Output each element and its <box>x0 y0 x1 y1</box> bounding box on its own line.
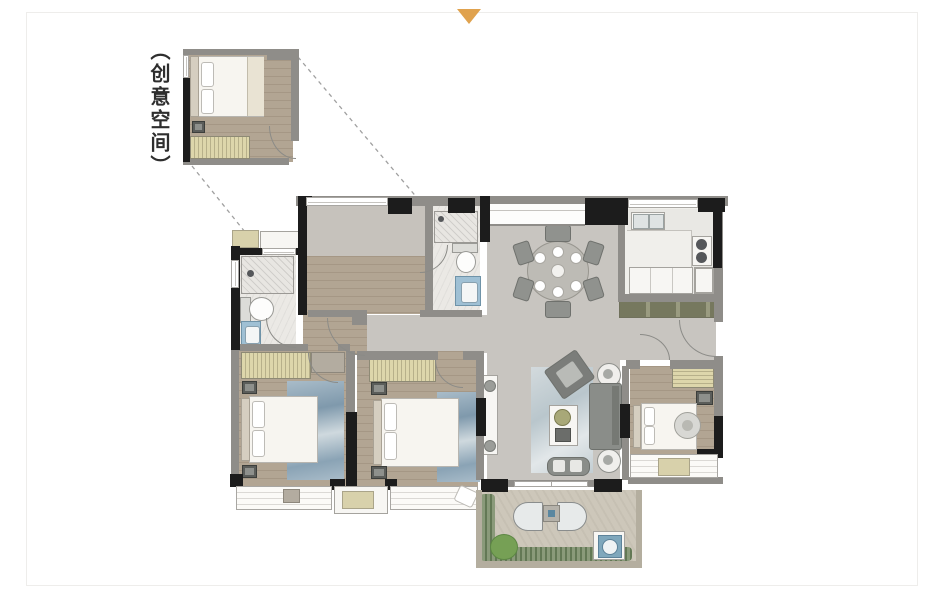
wall-black <box>620 404 630 438</box>
place-setting <box>552 246 564 258</box>
wall-bedroom1-top <box>239 344 308 351</box>
balcony-table <box>543 505 560 522</box>
sofa <box>589 383 622 450</box>
ac-unit <box>342 491 374 509</box>
vanity-sink <box>455 276 481 306</box>
bathroom-window <box>231 260 239 288</box>
stove-burner <box>696 252 707 263</box>
pillow <box>384 403 397 431</box>
column <box>448 198 475 213</box>
wall-bed1-bed2 <box>346 351 355 412</box>
fridge <box>694 267 714 294</box>
balcony-wall <box>636 490 642 568</box>
pillow <box>644 426 655 445</box>
main-floorplan <box>0 0 943 590</box>
sink-bowl <box>245 326 260 344</box>
sink-basin <box>649 214 664 229</box>
sofa-back <box>612 386 619 445</box>
side-table-lamp <box>597 449 621 473</box>
table-centerpiece <box>551 264 565 278</box>
sink-basin <box>633 214 649 229</box>
pillow <box>252 401 265 428</box>
wall-bedroom3-bottom <box>628 477 723 484</box>
ac-platform <box>260 231 300 249</box>
bush-icon <box>490 534 518 560</box>
wall-dining-entry <box>618 224 625 302</box>
wall-black <box>346 412 357 487</box>
place-setting <box>570 252 582 264</box>
stove-burner <box>696 239 707 250</box>
washer-drum-icon <box>602 539 618 555</box>
wall-bedroom1-left <box>231 350 239 476</box>
window-mullion <box>490 210 585 211</box>
shower-drain-icon <box>247 270 254 277</box>
nightstand <box>371 382 387 395</box>
window <box>306 197 388 206</box>
place-setting <box>534 252 546 264</box>
balcony-slider-door <box>514 481 588 487</box>
wall-black <box>298 205 307 315</box>
column <box>698 198 725 212</box>
wall-multi-bottom <box>308 310 354 317</box>
column <box>585 198 628 225</box>
dining-chair <box>545 301 571 318</box>
toilet <box>456 251 476 273</box>
nightstand <box>242 465 257 478</box>
column <box>388 198 412 214</box>
balcony-chair <box>513 502 543 531</box>
bench-cushion <box>553 460 565 472</box>
multifunction-room-wood-floor <box>303 256 425 314</box>
floorplan-page: （创意空间） <box>0 0 943 590</box>
wall-living-bed2 <box>476 436 484 480</box>
nightstand <box>371 466 387 479</box>
bench-cushion <box>570 460 582 472</box>
place-setting <box>570 280 582 292</box>
vanity-sink <box>241 321 261 346</box>
kitchen-window <box>628 199 698 208</box>
armchair-cushion <box>555 361 583 389</box>
kitchen-cabinets <box>629 267 693 294</box>
lamp-icon <box>603 455 613 465</box>
shower-drain-icon <box>438 216 444 222</box>
wall-bath-bottom <box>420 310 482 317</box>
slider-divider <box>551 482 552 486</box>
wall-black <box>476 398 486 436</box>
flower-center <box>682 420 693 431</box>
bedroom1-wardrobe <box>241 352 311 379</box>
wall-bedroom3-top <box>670 360 718 369</box>
column <box>480 196 490 242</box>
bedroom1-headboard <box>241 398 250 461</box>
dining-window <box>490 202 585 226</box>
hallway-tile-floor <box>367 315 487 353</box>
bench-ottoman <box>547 457 590 476</box>
nightstand <box>242 381 257 394</box>
wall-black <box>713 212 722 268</box>
pillow <box>384 432 397 460</box>
speaker <box>484 440 496 452</box>
balcony-wall <box>476 490 482 566</box>
wall-black <box>594 479 622 492</box>
wall-kitchen-right <box>714 268 722 302</box>
speaker <box>484 380 496 392</box>
table-top-decor <box>548 510 555 517</box>
plant-icon <box>554 409 571 426</box>
tray <box>555 428 571 442</box>
place-setting <box>552 286 564 298</box>
bedroom3-cabinet <box>696 391 713 405</box>
entry-sideboard <box>619 301 716 318</box>
bedroom2-headboard <box>373 400 382 465</box>
wall-living-bed2 <box>476 351 484 398</box>
pillow <box>644 407 655 426</box>
place-setting <box>534 280 546 292</box>
lamp-icon <box>603 369 613 379</box>
bay-window-vent <box>283 489 300 503</box>
balcony-chair <box>557 502 587 531</box>
wall-bedroom2-top <box>357 351 438 360</box>
wall-black <box>481 479 508 492</box>
balcony-wall <box>476 561 642 568</box>
sink-bowl <box>461 282 478 303</box>
dining-chair <box>545 225 571 242</box>
wall-black <box>239 248 262 255</box>
wall-black <box>296 248 307 255</box>
pillow <box>252 430 265 457</box>
bed-flower-decor <box>674 412 701 439</box>
washing-area <box>593 531 625 560</box>
bay-tan-box <box>658 458 690 476</box>
bedroom3-headboard <box>633 405 641 448</box>
bathroom-window <box>262 248 296 255</box>
wall-kitchen-bottom <box>618 294 718 302</box>
